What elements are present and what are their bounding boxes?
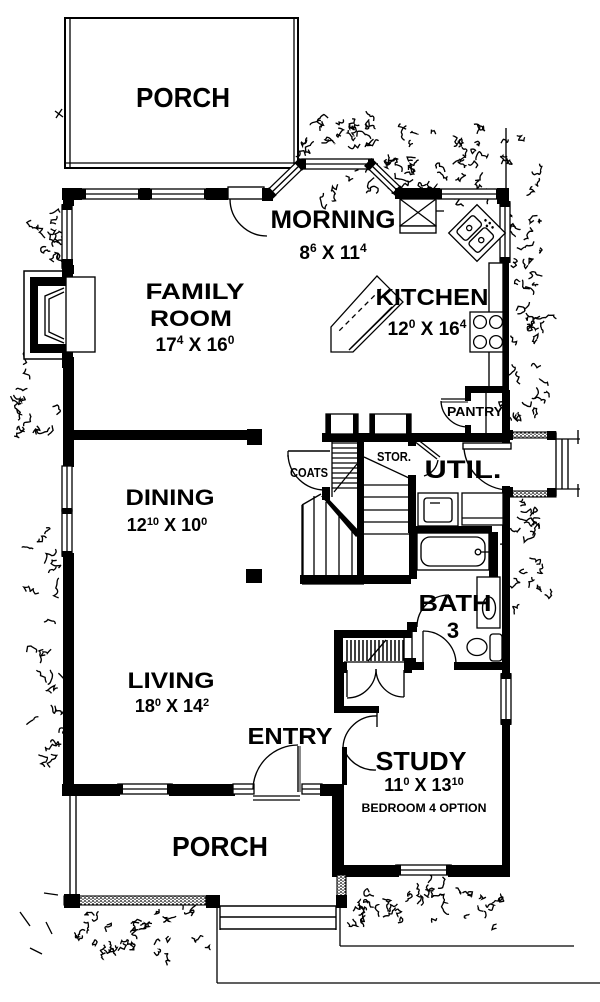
svg-text:120 X 164: 120 X 164	[388, 317, 467, 340]
svg-text:COATS: COATS	[290, 466, 328, 480]
svg-text:BEDROOM 4 OPTION: BEDROOM 4 OPTION	[362, 803, 487, 815]
svg-text:PORCH: PORCH	[172, 831, 268, 862]
svg-text:DINING: DINING	[126, 485, 215, 510]
svg-text:PANTRY: PANTRY	[447, 404, 503, 419]
svg-text:PORCH: PORCH	[136, 82, 230, 113]
svg-text:174 X 160: 174 X 160	[156, 333, 235, 356]
svg-text:STUDY: STUDY	[376, 746, 467, 776]
svg-text:ENTRY: ENTRY	[248, 723, 333, 749]
svg-text:BATH: BATH	[419, 590, 492, 616]
svg-text:KITCHEN: KITCHEN	[376, 284, 489, 310]
svg-text:180 X 142: 180 X 142	[135, 696, 209, 716]
svg-text:3: 3	[447, 618, 459, 643]
svg-text:STOR.: STOR.	[377, 450, 411, 464]
svg-text:UTIL.: UTIL.	[425, 456, 502, 484]
svg-text:ROOM: ROOM	[150, 306, 232, 331]
svg-text:LIVING: LIVING	[128, 668, 215, 693]
svg-text:MORNING: MORNING	[271, 206, 396, 234]
svg-text:86 X 114: 86 X 114	[299, 241, 367, 264]
svg-text:1210 X 100: 1210 X 100	[127, 515, 207, 535]
svg-text:FAMILY: FAMILY	[146, 279, 245, 304]
